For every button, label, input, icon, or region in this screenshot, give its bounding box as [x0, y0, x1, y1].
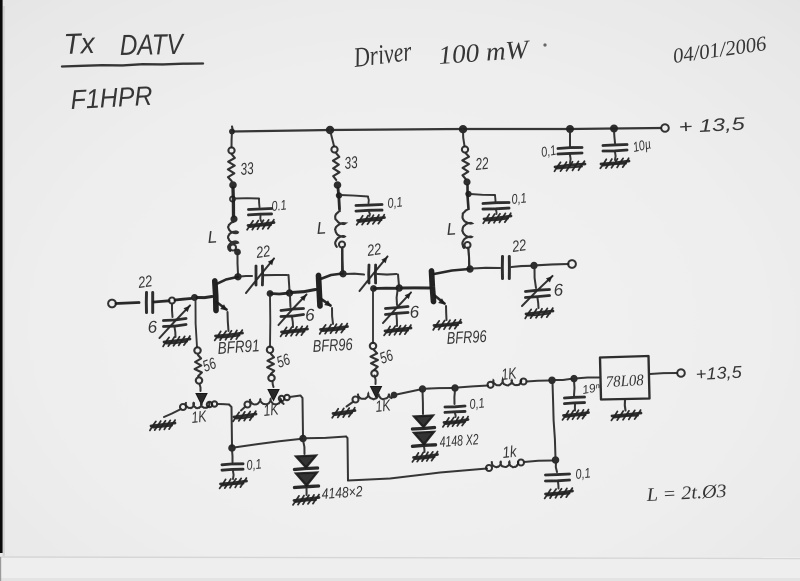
svg-text:+ 13,5: + 13,5 — [678, 114, 746, 137]
svg-text:BFR91: BFR91 — [217, 336, 260, 358]
svg-text:1K: 1K — [263, 401, 281, 420]
svg-text:+13,5: +13,5 — [695, 363, 743, 384]
svg-text:6: 6 — [553, 280, 564, 300]
svg-text:4148×2: 4148×2 — [321, 483, 364, 503]
svg-text:22: 22 — [136, 273, 153, 292]
svg-text:6: 6 — [304, 305, 315, 325]
svg-text:Tx: Tx — [63, 28, 97, 61]
svg-text:22: 22 — [510, 237, 527, 256]
svg-text:0,1: 0,1 — [469, 395, 486, 412]
svg-text:0,1: 0,1 — [511, 190, 528, 207]
svg-text:L = 2t.Ø3: L = 2t.Ø3 — [645, 481, 727, 506]
svg-text:F1HPR: F1HPR — [70, 81, 153, 115]
svg-text:BFR96: BFR96 — [446, 327, 487, 348]
svg-text:DATV: DATV — [120, 29, 186, 62]
svg-text:22: 22 — [474, 154, 490, 174]
svg-text:1K: 1K — [501, 365, 519, 384]
svg-text:0.1: 0.1 — [271, 197, 288, 214]
svg-text:33: 33 — [240, 159, 255, 179]
svg-text:6: 6 — [147, 317, 158, 337]
svg-text:6: 6 — [409, 302, 420, 322]
svg-text:0,1: 0,1 — [575, 465, 592, 482]
svg-text:L: L — [207, 227, 218, 247]
svg-text:L: L — [316, 218, 327, 238]
svg-text:22: 22 — [254, 243, 271, 262]
svg-text:1K: 1K — [375, 397, 393, 416]
svg-text:33: 33 — [344, 153, 359, 173]
svg-text:1k: 1k — [502, 444, 519, 462]
svg-text:22: 22 — [365, 241, 382, 260]
svg-text:1K: 1K — [191, 408, 209, 427]
svg-text:4148 X2: 4148 X2 — [439, 431, 480, 451]
svg-text:0,1: 0,1 — [387, 194, 404, 211]
svg-text:0,1: 0,1 — [540, 142, 558, 160]
svg-text:L: L — [446, 219, 457, 239]
svg-text:78L08: 78L08 — [605, 372, 644, 391]
svg-text:BFR96: BFR96 — [312, 335, 353, 356]
svg-text:0,1: 0,1 — [246, 456, 263, 473]
